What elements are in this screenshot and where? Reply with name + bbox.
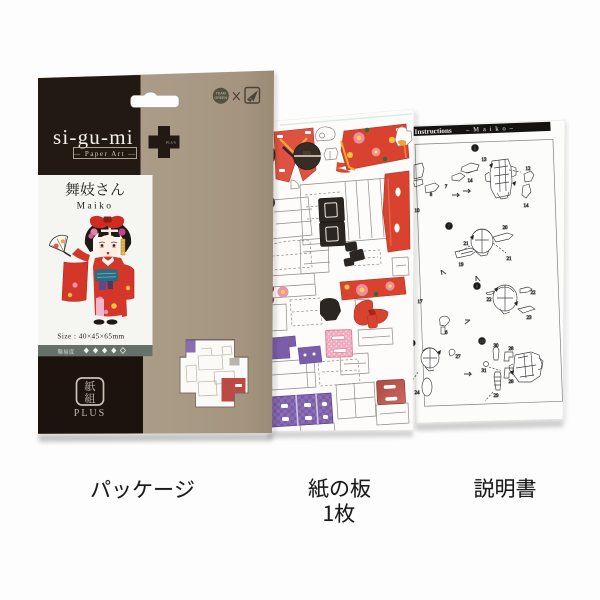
svg-text:22: 22 bbox=[487, 298, 493, 303]
svg-text:— Paper Art —: — Paper Art — bbox=[72, 150, 137, 158]
svg-text:31: 31 bbox=[482, 369, 488, 374]
svg-text:20: 20 bbox=[503, 226, 509, 231]
svg-text:14: 14 bbox=[468, 179, 474, 184]
svg-text:Instructions: Instructions bbox=[414, 127, 452, 136]
svg-text:10: 10 bbox=[480, 340, 486, 345]
svg-text:27: 27 bbox=[456, 355, 462, 360]
svg-text:si-gu-mi: si-gu-mi bbox=[53, 125, 134, 149]
svg-text:GREEN: GREEN bbox=[215, 96, 228, 100]
svg-text:Maiko: Maiko bbox=[77, 202, 114, 212]
svg-text:23: 23 bbox=[527, 316, 533, 321]
svg-text:21: 21 bbox=[464, 242, 470, 247]
svg-text:14: 14 bbox=[524, 204, 530, 209]
svg-text:13: 13 bbox=[482, 158, 488, 163]
svg-text:21: 21 bbox=[507, 257, 513, 262]
svg-text:Size : 40×45×65mm: Size : 40×45×65mm bbox=[57, 333, 124, 341]
svg-text:28: 28 bbox=[509, 347, 515, 352]
svg-text:17: 17 bbox=[418, 300, 424, 305]
svg-text:29: 29 bbox=[494, 394, 500, 399]
svg-text:19: 19 bbox=[459, 263, 465, 268]
svg-text:28: 28 bbox=[509, 380, 515, 385]
svg-text:22: 22 bbox=[531, 291, 537, 296]
svg-text:PLUS: PLUS bbox=[166, 141, 176, 145]
svg-text:PLUS: PLUS bbox=[74, 408, 106, 419]
